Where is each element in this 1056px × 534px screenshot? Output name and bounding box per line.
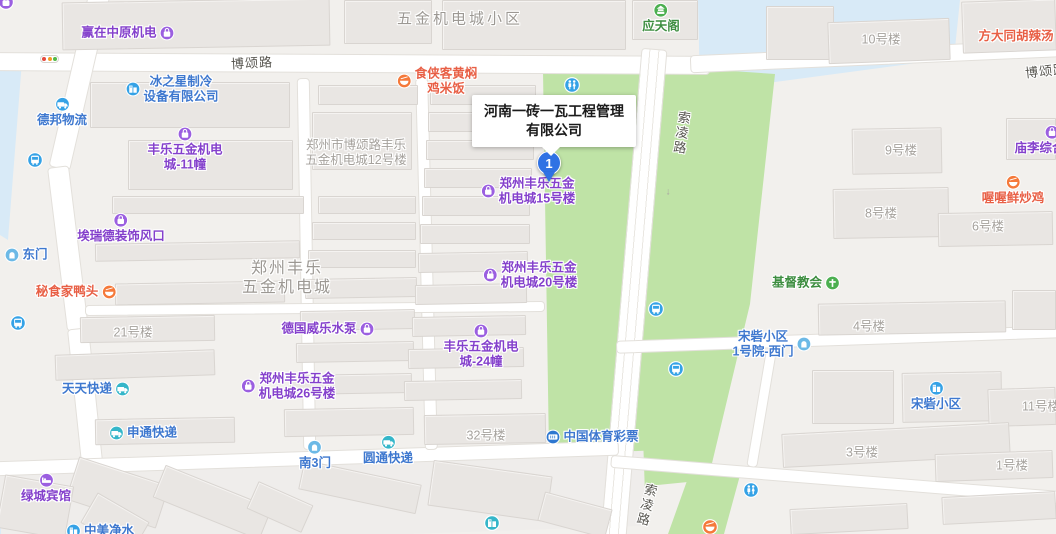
building-block [812,370,894,424]
marker-tail [543,172,555,182]
poi-jidu-church[interactable]: 基督教会 [772,276,840,291]
poi-mishijia-duck-label: 秘食家鸭头 [36,285,99,300]
poi-songzhai-ximen-label: 宋砦小区1号院-西门 [732,330,793,359]
building-block [789,503,908,534]
label-8haolou: 8号楼 [865,207,897,222]
pavilion-icon [653,3,668,18]
road-direction-arrow: ↓ [666,187,671,198]
callout-company-name-line1: 河南一砖一瓦工程管理 [480,102,628,121]
poi-yingzai-zhongyuan-label: 赢在中原机电 [81,26,156,41]
building-block [112,196,304,214]
label-6haolou: 6号楼 [972,220,1004,235]
poi-lvcheng-hotel-label: 绿城宾馆 [21,489,71,504]
poi-zhengzhou-fengle-26[interactable]: 郑州丰乐五金机电城26号楼 [241,372,335,401]
label-32haolou: 32号楼 [467,429,506,444]
building-block [935,450,1054,482]
toilet-icon-1[interactable] [564,77,580,93]
map-canvas[interactable]: 赢在中原机电应天阁方大同胡辣汤食侠客黄焖鸡米饭冰之星制冷设备有限公司德邦物流丰乐… [0,0,1056,534]
road-label-bosong-2: 博颂路 [1024,58,1056,81]
poi-yingtian-ge[interactable]: 应天阁 [642,3,680,34]
poi-songzhai-xiaoqu[interactable]: 宋砦小区 [911,381,961,412]
poi-zhongguo-ticai-label: 中国体育彩票 [563,430,638,445]
building-block [55,349,216,381]
bus-stop-icon-4[interactable] [668,361,684,377]
poi-miaoli-market[interactable]: 庙李综合市场 [1014,125,1056,156]
poi-tiantian-express-label: 天天快递 [62,382,112,397]
label-11haolou: 11号楼 [1022,400,1056,415]
poi-shentong-express[interactable]: 申通快递 [109,426,177,441]
building-block [1012,290,1056,330]
door-icon [4,248,19,263]
poi-yingzai-zhongyuan[interactable]: 赢在中原机电 [81,26,174,41]
poi-mishijia-duck[interactable]: 秘食家鸭头 [36,285,117,300]
road [0,52,710,75]
poi-zhengzhou-fengle-20-label: 郑州丰乐五金机电城20号楼 [501,261,577,290]
door-icon [797,337,812,352]
poi-miaoli-market-label: 庙李综合市场 [1014,141,1056,156]
label-3haolou: 3号楼 [846,446,878,461]
building-block [766,6,834,60]
building-block [941,491,1056,525]
poi-zhengzhou-fengle-26-label: 郑州丰乐五金机电城26号楼 [259,372,335,401]
cross-icon [825,276,840,291]
bag-icon [113,213,128,228]
food-icon-bottom[interactable] [702,519,718,534]
building-block [420,224,530,244]
poi-bingzhixing-label: 冰之星制冷设备有限公司 [143,75,218,104]
building-icon [66,524,81,534]
poi-songzhai-ximen[interactable]: 宋砦小区1号院-西门 [732,330,811,359]
bag-icon [1044,125,1056,140]
label-10haolou: 10号楼 [862,33,901,48]
poi-zhengzhou-fengle-15[interactable]: 郑州丰乐五金机电城15号楼 [481,177,575,206]
label-4haolou: 4号楼 [853,320,885,335]
building-icon [125,82,140,97]
poi-nan3men[interactable]: 南3门 [299,440,331,471]
poi-bingzhixing[interactable]: 冰之星制冷设备有限公司 [125,75,218,104]
poi-dongmen[interactable]: 东门 [4,248,47,263]
bowl-icon [397,74,412,89]
info-callout[interactable]: 河南一砖一瓦工程管理 有限公司 [472,95,636,147]
water-area [0,55,30,240]
truck-icon [54,97,69,112]
poi-zhongmei-water[interactable]: 中美净水 [66,524,134,534]
poi-fengle-24-label: 丰乐五金机电城-24幢 [443,340,518,369]
poi-deguo-weile-pump-label: 德国威乐水泵 [281,322,356,337]
poi-tiantian-express[interactable]: 天天快递 [62,382,130,397]
toilet-icon-2[interactable] [743,482,759,498]
bed-icon [38,473,53,488]
building-block [296,341,414,363]
poi-fangda-hulatang-label: 方大同胡辣汤 [978,29,1053,44]
poi-zhengzhou-fengle-20[interactable]: 郑州丰乐五金机电城20号楼 [483,261,577,290]
label-9haolou: 9号楼 [885,144,917,159]
bowl-icon [101,285,116,300]
traffic-light-icon [40,55,59,63]
door-icon [307,440,322,455]
bus-stop-icon-2[interactable] [10,315,26,331]
poi-jidu-church-label: 基督教会 [772,276,822,291]
poi-icon-corner[interactable] [0,0,14,10]
poi-wowo-chicken[interactable]: 喔喔鲜炒鸡 [982,175,1045,206]
poi-wowo-chicken-label: 喔喔鲜炒鸡 [982,191,1045,206]
area-zhengzhou-fengle-city: 郑州丰乐五金机电城 [242,259,332,297]
building-icon-bottom[interactable] [484,515,500,531]
building-block [961,0,1056,54]
poi-shentong-express-label: 申通快递 [127,426,177,441]
building-block [818,300,1007,335]
bag-icon [160,26,175,41]
bus-stop-icon-1[interactable] [27,152,43,168]
poi-yuantong-express-label: 圆通快递 [363,451,413,466]
poi-shixiake-label: 食侠客黄焖鸡米饭 [415,67,478,96]
road-label-bosong-1: 博颂路 [231,51,274,72]
poi-airuide-label: 埃瑞德装饰风口 [77,229,165,244]
bag-icon [481,184,496,199]
poi-dongmen-label: 东门 [22,248,47,263]
poi-yuantong-express[interactable]: 圆通快递 [363,435,413,466]
label-1haolou: 1号楼 [996,459,1028,474]
poi-debang-wuliu-label: 德邦物流 [37,113,87,128]
poi-deguo-weile-pump[interactable]: 德国威乐水泵 [281,322,374,337]
label-21haolou: 21号楼 [114,326,153,341]
building-block [284,407,414,437]
truck-icon [109,426,124,441]
poi-fangda-hulatang[interactable]: 方大同胡辣汤 [978,29,1053,44]
building-block [404,379,522,401]
poi-debang-wuliu[interactable]: 德邦物流 [37,97,87,128]
bag-icon [483,268,498,283]
callout-pointer [542,147,560,156]
poi-fengle-24[interactable]: 丰乐五金机电城-24幢 [443,324,518,369]
building-block [318,196,416,214]
building-block [312,222,416,240]
ticket-icon [545,430,560,445]
poi-songzhai-xiaoqu-label: 宋砦小区 [911,397,961,412]
label-12haolou: 郑州市博颂路丰乐五金机电城12号楼 [305,138,406,168]
truck-icon [115,382,130,397]
poi-zhongmei-water-label: 中美净水 [84,524,134,534]
poi-lvcheng-hotel[interactable]: 绿城宾馆 [21,473,71,504]
road [47,165,89,331]
building-icon [928,381,943,396]
poi-zhongguo-ticai[interactable]: 中国体育彩票 [545,430,638,445]
poi-fengle-11-label: 丰乐五金机电城-11幢 [147,143,222,172]
poi-yingtian-ge-label: 应天阁 [642,19,680,34]
truck-icon [380,435,395,450]
poi-nan3men-label: 南3门 [299,456,331,471]
marker-number: 1 [545,156,552,171]
bag-icon [473,324,488,339]
area-wujin-jidiancheng-xiaoqu: 五金机电城小区 [397,10,523,29]
road [746,350,777,468]
poi-shixiake[interactable]: 食侠客黄焖鸡米饭 [397,67,478,96]
bowl-icon [1005,175,1020,190]
poi-fengle-11[interactable]: 丰乐五金机电城-11幢 [147,127,222,172]
bus-stop-icon-3[interactable] [648,301,664,317]
bag-icon [177,127,192,142]
bag-icon [360,322,375,337]
bag-icon [241,379,256,394]
callout-company-name-line2: 有限公司 [480,121,628,140]
poi-airuide[interactable]: 埃瑞德装饰风口 [77,213,165,244]
